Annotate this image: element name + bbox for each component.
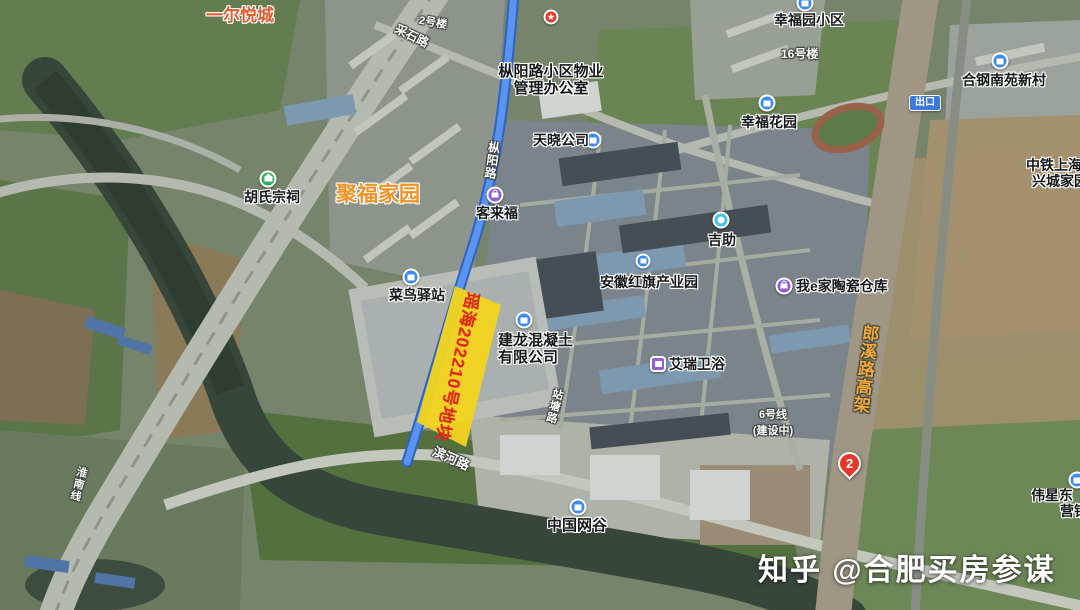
exit-badge[interactable]: 出口 — [909, 95, 941, 111]
poi-kelaifu[interactable]: 客来福 — [476, 206, 518, 222]
poi-hushizongci[interactable]: 胡氏宗祠 — [244, 190, 300, 206]
weixing-icon[interactable] — [1069, 472, 1080, 489]
poi-xingfuyuan[interactable]: 幸福园小区 — [774, 13, 844, 29]
cainiao-station-icon[interactable] — [403, 269, 420, 286]
metro6-line1: 6号线 — [748, 406, 798, 422]
satellite-map[interactable]: 2 出口 一尔悦城 2号楼 采石路 枞阳路小区物业 管理办公室 天晓公司 幸福园… — [0, 0, 1080, 610]
property-office-star-pin[interactable] — [544, 10, 559, 25]
kelaifu-shop-icon[interactable] — [487, 187, 504, 204]
hegang-icon[interactable] — [992, 53, 1009, 70]
metro6-line2: (建设中) — [748, 422, 798, 438]
property-office-line2: 管理办公室 — [456, 81, 646, 98]
airui-icon[interactable] — [650, 356, 666, 372]
zhongtie-line1: 中铁上海工 — [1026, 158, 1080, 174]
poi-weixing[interactable]: 伟星东 营销 — [1031, 488, 1080, 519]
hongqi-park-icon[interactable] — [636, 254, 651, 269]
building16-label: 16号楼 — [781, 45, 818, 62]
wanggu-icon[interactable] — [570, 499, 587, 516]
zhihu-watermark: 知乎 @合肥买房参谋 — [758, 545, 1056, 589]
poi-hegang[interactable]: 合钢南苑新村 — [962, 73, 1046, 89]
weixing-line2: 营销 — [1060, 504, 1080, 520]
jianlong-line2: 有限公司 — [498, 350, 573, 367]
line2-pin-number: 2 — [846, 456, 853, 471]
ancestral-hall-icon[interactable] — [260, 171, 277, 188]
jizhu-icon[interactable] — [713, 212, 730, 229]
metro6-label: 6号线 (建设中) — [748, 406, 798, 438]
jianlong-line1: 建龙混凝土 — [498, 333, 573, 350]
poi-xingfuhuayuan[interactable]: 幸福花园 — [741, 115, 797, 131]
poi-jianlong[interactable]: 建龙混凝土 有限公司 — [498, 333, 573, 367]
poi-property-office[interactable]: 枞阳路小区物业 管理办公室 — [456, 64, 646, 98]
poi-zhongtie[interactable]: 中铁上海工 兴城家园 — [1026, 158, 1080, 189]
woejia-warehouse-icon[interactable] — [776, 278, 793, 295]
xingfuhuayuan-icon[interactable] — [759, 95, 776, 112]
property-office-line1: 枞阳路小区物业 — [456, 64, 646, 81]
weixing-line1: 伟星东 — [1031, 488, 1080, 504]
poi-cainiao[interactable]: 菜鸟驿站 — [389, 288, 445, 304]
poi-yieryuecheng[interactable]: 一尔悦城 — [206, 6, 274, 25]
poi-tianxiao[interactable]: 天晓公司 — [533, 133, 589, 149]
poi-jizhu[interactable]: 吉助 — [708, 233, 736, 249]
poi-hongqi[interactable]: 安徽红旗产业园 — [600, 275, 698, 291]
jianlong-company-icon[interactable] — [516, 312, 533, 329]
poi-jufujiayuan[interactable]: 聚福家园 — [336, 183, 420, 207]
poi-zhongguowanggu[interactable]: 中国网谷 — [547, 518, 607, 535]
poi-woejia[interactable]: 我e家陶瓷仓库 — [796, 279, 888, 295]
zhongtie-line2: 兴城家园 — [1032, 174, 1080, 190]
poi-airui[interactable]: 艾瑞卫浴 — [669, 357, 725, 373]
